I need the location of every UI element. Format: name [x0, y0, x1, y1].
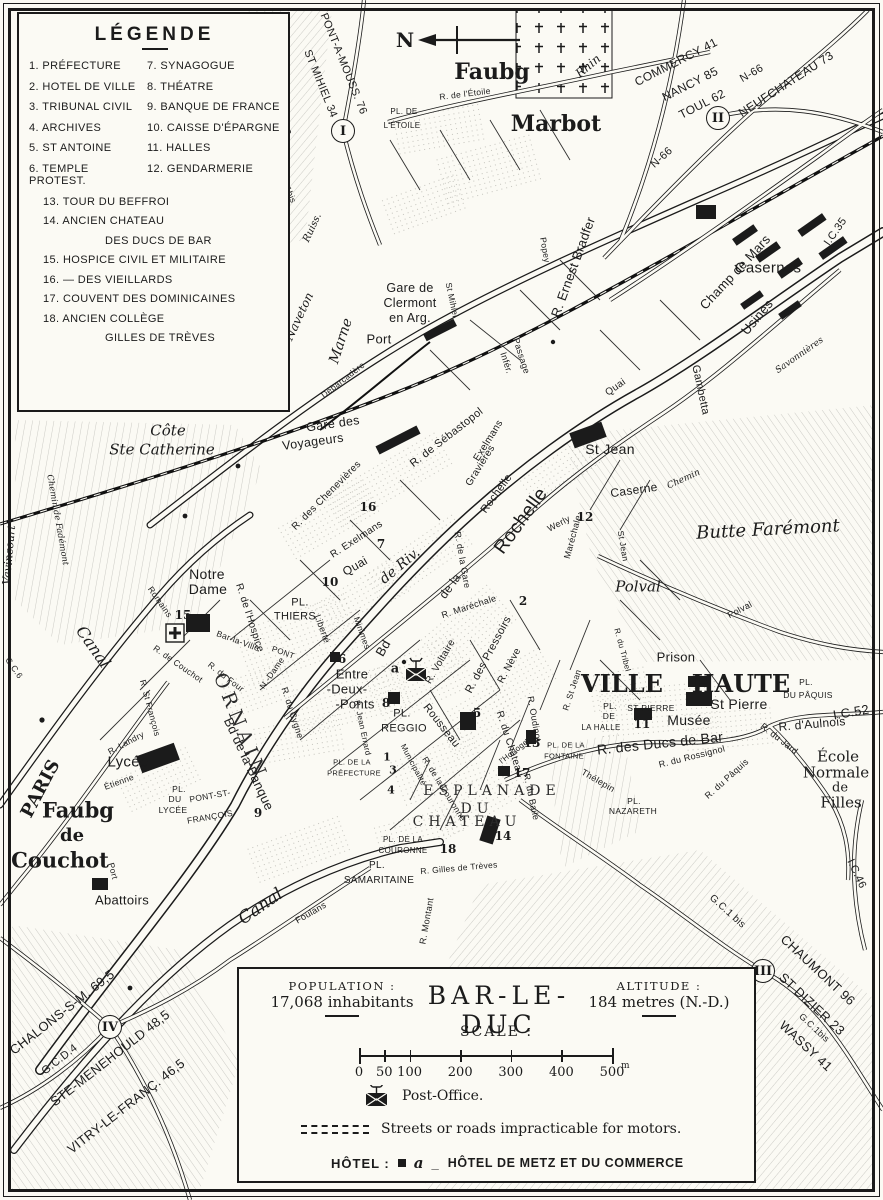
scale-tick-label: 200: [448, 1065, 473, 1080]
map-label: R. St Jean: [561, 668, 582, 711]
impracticable-road-icon: [301, 1125, 369, 1134]
map-label: Faubg: [454, 61, 529, 83]
legend-item: GILLES DE TRÈVES: [43, 332, 280, 344]
post-office-icon: [364, 1085, 390, 1107]
map-label: 16: [360, 501, 377, 513]
map-label: PL.: [172, 785, 186, 794]
map-label: Chemin de Fadémont: [45, 474, 69, 566]
scale-bar: 050100200300400500m: [359, 1049, 612, 1079]
map-label: Thélepin: [580, 768, 616, 794]
map-label: R. Gilles de Trèves: [420, 860, 498, 875]
map-label: 3: [389, 765, 397, 776]
map-label: G.C.6: [4, 656, 25, 680]
map-label: Gambetta: [689, 364, 710, 416]
map-label: Normale: [803, 766, 869, 781]
map-label: R. de Sébastopol: [408, 406, 485, 470]
map-label: R. Voltaire: [424, 638, 457, 686]
legend-item: 10. CAISSE D'ÉPARGNE: [147, 122, 280, 134]
map-label: ST MIHIEL 34: [301, 49, 338, 120]
map-label: PL.: [627, 797, 641, 806]
hotel-marker: a: [414, 1154, 424, 1172]
info-box: POPULATION : 17,068 inhabitants BAR-LE-D…: [237, 967, 756, 1183]
map-label: HAUTE: [692, 672, 790, 696]
map-label: L'ÉTOILE: [384, 122, 421, 130]
impracticable-row: Streets or roads impracticable for motor…: [301, 1121, 681, 1137]
map-label: PL.: [369, 861, 385, 871]
map-label: PL.: [393, 709, 410, 720]
map-label: Abattoirs: [95, 894, 149, 907]
map-label: ST PIERRE: [627, 704, 674, 713]
map-label: R. Ernest Bradfer: [549, 215, 597, 319]
map-label: DU PÂQUIS: [783, 691, 832, 700]
map-label: Caserne: [610, 481, 659, 499]
map-label: CHALONS-S-M. 69,5: [7, 967, 116, 1056]
map-label: 4: [387, 785, 395, 796]
legend-box: LÉGENDE 1. PRÉFECTURE2. HOTEL DE VILLE3.…: [17, 12, 290, 412]
legend-title-underline: [142, 48, 168, 50]
map-label: PL. DE LA: [383, 836, 423, 844]
divider: [325, 1015, 359, 1017]
population-value: 17,068 inhabitants: [267, 993, 417, 1011]
scale-tick: [511, 1050, 513, 1062]
map-label: CHATEAU: [413, 815, 522, 829]
map-label: Foulans: [294, 901, 328, 926]
map-label: DE: [603, 712, 615, 721]
map-label: FRANÇOIS: [186, 809, 233, 825]
legend-title: LÉGENDE: [29, 24, 280, 46]
map-label: -Deux-: [327, 683, 368, 696]
hotel-label: HÔTEL :: [331, 1156, 390, 1171]
legend-item: 8. THÉATRE: [147, 81, 280, 93]
legend-column-2: 7. SYNAGOGUE8. THÉATRE9. BANQUE DE FRANC…: [147, 60, 280, 187]
scale-tick: [460, 1050, 462, 1062]
scale-tick: [410, 1050, 412, 1062]
map-label: Rhin: [573, 52, 602, 79]
map-label: Polval: [726, 600, 753, 620]
map-label: Usines: [739, 297, 776, 337]
map-label: Débarcadère: [320, 361, 367, 400]
map-label: St Jean: [616, 530, 630, 562]
map-label: 7: [377, 538, 385, 550]
scale-tick: [384, 1050, 386, 1062]
map-label: Casernes: [735, 261, 802, 276]
map-label: R. Montant: [418, 897, 435, 945]
map-label: R. du Tribel: [612, 627, 631, 672]
legend-item: 13. TOUR DU BEFFROI: [43, 196, 280, 208]
map-label: G.C.1 bis: [707, 893, 747, 930]
altitude-label: ALTITUDE :: [584, 979, 734, 993]
map-label: Canal: [236, 886, 286, 928]
map-label: N-66: [738, 63, 765, 85]
map-label: Port: [107, 862, 120, 880]
map-label: Musée: [667, 713, 711, 727]
postoffice-row: Post-Office.: [364, 1085, 483, 1107]
map-label: ESPLANADE: [423, 784, 560, 798]
map-label: Ste Catherine: [109, 443, 214, 458]
legend-item: 14. ANCIEN CHATEAU: [43, 215, 280, 227]
map-label: Ruiss.: [302, 212, 324, 244]
map-label: Minimes: [352, 616, 372, 651]
map-label: Popey: [539, 237, 552, 264]
map-label: Quai: [340, 554, 369, 578]
scale-tick-label: 100: [397, 1065, 422, 1080]
map-label: en Arg.: [389, 312, 431, 325]
map-label: Lycée: [108, 755, 149, 770]
map-label: 6: [338, 653, 346, 665]
map-label: N-66: [649, 146, 675, 171]
scale-tick-label: 400: [549, 1065, 574, 1080]
legend-item: DES DUCS DE BAR: [43, 235, 280, 247]
map-label: Couchot: [11, 850, 109, 871]
map-label: Faubg: [42, 800, 114, 821]
altitude-value: 184 metres (N.-D.): [584, 993, 734, 1011]
map-label: R. St François: [138, 679, 161, 737]
map-label: VILLE: [581, 672, 663, 696]
legend-extra-items: 13. TOUR DU BEFFROI14. ANCIEN CHATEAUDES…: [29, 196, 280, 345]
legend-item: 18. ANCIEN COLLÈGE: [43, 313, 280, 325]
map-label: R. des Chenevières: [291, 460, 364, 533]
map-label: Bd: [373, 638, 393, 659]
legend-item: 4. ARCHIVES: [29, 122, 147, 134]
map-label: PL. DE LA: [333, 758, 371, 766]
map-label: Port: [366, 333, 391, 346]
map-label: R. Nève: [497, 647, 524, 685]
map-label: Voyageurs: [282, 432, 345, 453]
map-label: N.-Dame: [258, 656, 286, 690]
map-label: Quai: [604, 378, 628, 399]
map-label: Rochelle: [479, 472, 514, 515]
scale-label: SCALE :: [460, 1024, 533, 1040]
map-label: Notre: [189, 567, 225, 581]
map-label: Côte: [150, 424, 185, 439]
map-label: de la: [437, 571, 463, 600]
map-label: R. Landry: [107, 730, 146, 756]
map-label: Vavincourt: [1, 525, 17, 586]
map-label: LA HALLE: [581, 724, 620, 732]
map-label: 18: [440, 843, 457, 855]
map-label: Romains: [146, 585, 173, 619]
map-label: 8: [382, 697, 390, 709]
map-label: PL. DE: [390, 108, 417, 116]
map-label: Clermont: [383, 297, 436, 310]
map-label: St Pierre: [710, 697, 767, 711]
legend-item: 7. SYNAGOGUE: [147, 60, 280, 72]
map-label: 2: [519, 595, 527, 607]
map-label: Marbot: [511, 113, 601, 135]
map-label: NEUFCHATEAU 73: [737, 49, 836, 119]
legend-item: 9. BANQUE DE FRANCE: [147, 101, 280, 113]
map-label: 14: [495, 830, 512, 842]
map-label: 11: [634, 718, 651, 730]
legend-item: 17. COUVENT DES DOMINICAINES: [43, 293, 280, 305]
map-label: N: [396, 30, 414, 50]
map-label: 10: [322, 576, 339, 588]
map-label: REGGIO: [381, 724, 427, 735]
map-label: 5: [473, 707, 481, 719]
map-label: Polval: [615, 580, 661, 595]
legend-item: 1. PRÉFECTURE: [29, 60, 147, 72]
legend-item: 15. HOSPICE CIVIL ET MILITAIRE: [43, 254, 280, 266]
map-label: 1: [383, 752, 391, 763]
dash: _: [432, 1156, 440, 1171]
map-label: Savonnières: [774, 336, 825, 376]
legend-item: 2. HOTEL DE VILLE: [29, 81, 147, 93]
map-label: 15: [175, 609, 192, 621]
map-label: NAZARETH: [609, 807, 657, 816]
legend-item: 3. TRIBUNAL CIVIL: [29, 101, 147, 113]
map-label: CHAUMONT 96: [778, 932, 857, 1007]
map-label: École: [817, 750, 859, 765]
map-label: SAMARITAINE: [344, 876, 414, 886]
map-label: St Mihiel: [444, 282, 460, 318]
map-label: PONT-ST-: [189, 788, 231, 804]
map-label: Entre: [336, 668, 369, 681]
map-label: PL.: [291, 598, 308, 609]
hotel-row: HÔTEL : a _ HÔTEL DE METZ ET DU COMMERCE: [331, 1154, 684, 1172]
map-label: PL.: [603, 702, 617, 711]
map-label: R. du Pâquis: [704, 757, 751, 801]
route-marker-II: II: [706, 106, 730, 130]
map-label: Chemin: [666, 468, 702, 491]
scale-unit: m: [621, 1061, 630, 1071]
population-label: POPULATION :: [267, 979, 417, 993]
route-marker-I: I: [331, 119, 355, 143]
map-label: THIERS: [274, 612, 316, 623]
map-label: COURONNE: [378, 847, 427, 855]
legend-item: 6. TEMPLE PROTEST.: [29, 163, 147, 187]
map-label: Butte Farémont: [696, 517, 840, 542]
map-label: Canal: [73, 623, 113, 670]
map-label: PL.: [799, 678, 813, 687]
impracticable-label: Streets or roads impracticable for motor…: [381, 1121, 681, 1137]
map-label: Infér.: [498, 351, 513, 375]
legend-item: 11. HALLES: [147, 142, 280, 154]
postoffice-label: Post-Office.: [402, 1088, 483, 1104]
map-label: Prison: [657, 651, 696, 664]
map-label: LYCÉE: [159, 806, 188, 815]
scale-tick-label: 0: [355, 1065, 363, 1080]
scale-tick: [359, 1048, 361, 1064]
map-label: DU: [169, 795, 182, 804]
map-label: Dame: [189, 582, 228, 596]
map-label: R. de l'Étoile: [439, 87, 491, 102]
map-label: G.C.D.4: [40, 1043, 80, 1077]
map-canvas: NPONT-A-MOUSS. 76ST MIHIEL 34VERDUN 53G.…: [0, 0, 883, 1200]
route-marker-IV: IV: [98, 1015, 122, 1039]
map-label: Gare de: [386, 282, 433, 295]
scale-tick: [612, 1048, 614, 1064]
legend-item: 16. — DES VIEILLARDS: [43, 274, 280, 286]
map-label: St Jean: [585, 442, 635, 456]
map-label: de: [60, 827, 84, 845]
legend-item: 12. GENDARMERIE: [147, 163, 280, 175]
map-label: Liberté: [313, 614, 332, 645]
scale-tick-label: 50: [376, 1065, 393, 1080]
legend-item: 5. ST ANTOINE: [29, 142, 147, 154]
map-label: FONTAINE: [544, 752, 584, 760]
divider: [642, 1015, 676, 1017]
map-label: PRÉFECTURE: [327, 769, 381, 777]
map-label: de Riv.: [377, 545, 422, 586]
map-label: I.C.35: [823, 216, 850, 248]
map-label: Marne: [327, 317, 355, 366]
hotel-value: HÔTEL DE METZ ET DU COMMERCE: [448, 1156, 684, 1170]
map-label: Filles: [820, 796, 861, 811]
hotel-square-icon: [398, 1159, 406, 1167]
map-label: Étienne: [103, 773, 135, 792]
map-label: I.C.46: [844, 858, 867, 891]
map-label: R. d'Aulnois: [778, 715, 846, 733]
map-label: R. de Couchot: [152, 644, 205, 684]
map-label: R. du Cygne: [279, 686, 304, 739]
map-label: a: [391, 663, 399, 676]
scale-tick-label: 300: [498, 1065, 523, 1080]
map-label: PL. DE LA: [547, 741, 585, 749]
legend-column-1: 1. PRÉFECTURE2. HOTEL DE VILLE3. TRIBUNA…: [29, 60, 147, 187]
scale-tick: [561, 1050, 563, 1062]
